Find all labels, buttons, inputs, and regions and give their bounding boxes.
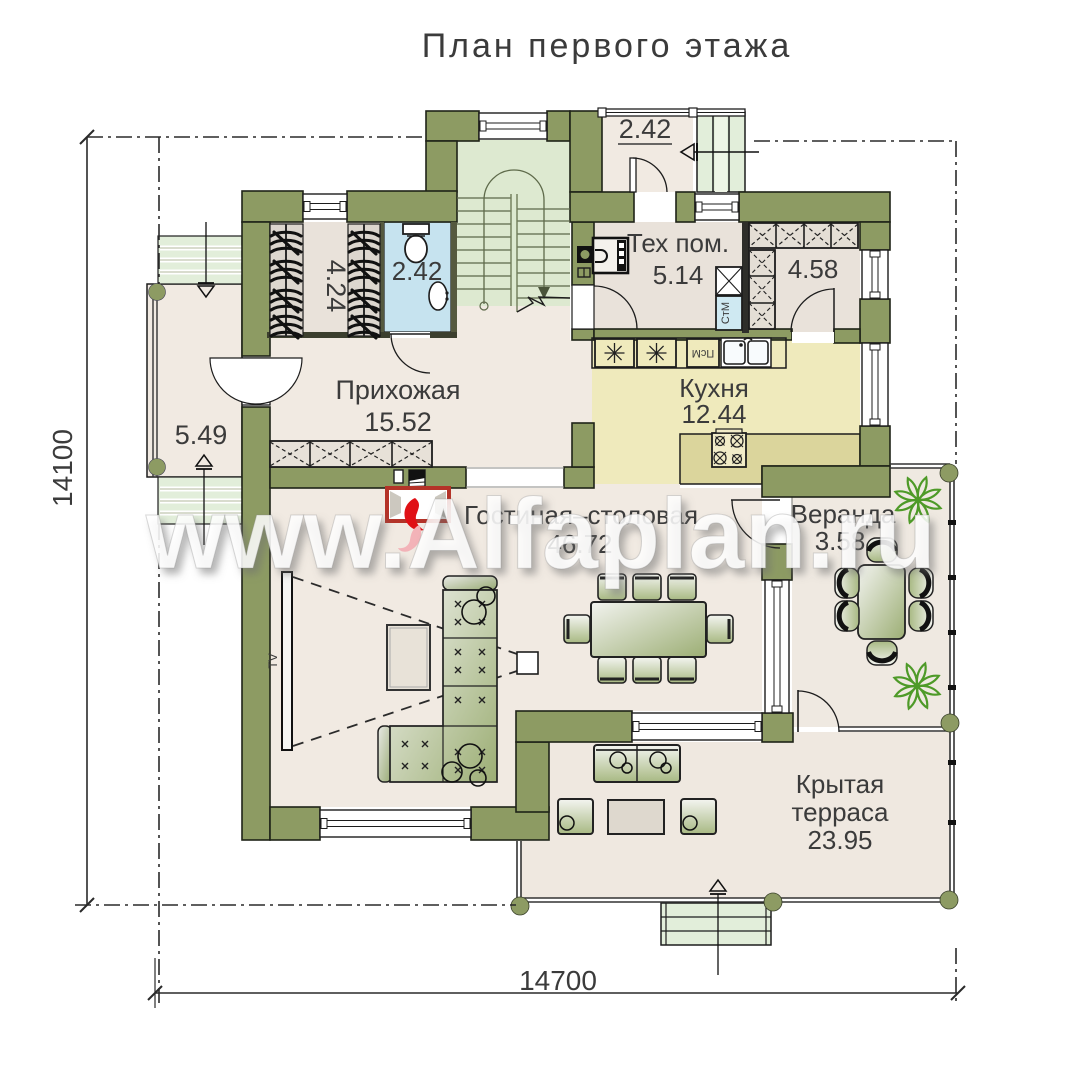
svg-text:14700: 14700 <box>519 965 597 996</box>
svg-text:СтМ: СтМ <box>720 302 732 324</box>
svg-text:2.42: 2.42 <box>392 256 443 286</box>
svg-text:Прихожая: Прихожая <box>335 375 460 405</box>
svg-text:4.58: 4.58 <box>788 254 839 284</box>
svg-text:5.49: 5.49 <box>175 420 228 450</box>
svg-text:12.44: 12.44 <box>681 399 746 429</box>
svg-text:15.52: 15.52 <box>364 407 432 437</box>
svg-text:План первого этажа: План первого этажа <box>422 27 793 65</box>
svg-text:www.Alfaplan.ru: www.Alfaplan.ru <box>145 478 936 590</box>
svg-text:23.95: 23.95 <box>807 825 872 855</box>
svg-text:ПсМ: ПсМ <box>692 347 715 359</box>
svg-text:5.14: 5.14 <box>653 260 704 290</box>
svg-text:Крытая: Крытая <box>796 769 884 799</box>
svg-text:2.42: 2.42 <box>619 114 672 144</box>
svg-text:терраса: терраса <box>792 797 889 827</box>
svg-text:TV: TV <box>266 653 280 668</box>
svg-text:4.24: 4.24 <box>321 260 351 313</box>
svg-text:14100: 14100 <box>47 429 78 507</box>
svg-text:Тех пом.: Тех пом. <box>627 228 729 258</box>
